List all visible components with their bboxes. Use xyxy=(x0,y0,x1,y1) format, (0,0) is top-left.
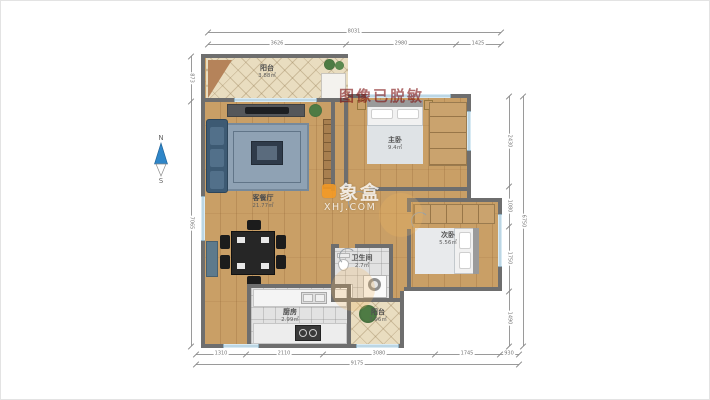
burner xyxy=(299,329,307,337)
dim-value: 8031 xyxy=(347,29,362,34)
dining-chair xyxy=(220,235,230,249)
room-label-kitchen: 厨房 2.99㎡ xyxy=(281,308,299,324)
sofa-cushion xyxy=(210,149,224,167)
coffee-table-top xyxy=(257,146,277,160)
room-area: 2.96㎡ xyxy=(369,317,387,324)
wall xyxy=(498,202,502,214)
dim-value: 1745 xyxy=(460,351,475,356)
window xyxy=(201,196,205,241)
room-label-second: 次卧 5.56㎡ xyxy=(439,231,457,247)
wall xyxy=(399,344,404,348)
dim-value: 6750 xyxy=(521,214,526,229)
wall xyxy=(404,287,502,291)
dim-value: 2110 xyxy=(277,351,292,356)
wall xyxy=(201,241,205,348)
second-bed-headboard xyxy=(473,228,479,274)
dining-chair xyxy=(276,255,286,269)
watermark-circle xyxy=(331,267,375,311)
wall xyxy=(201,54,348,58)
burner xyxy=(309,329,317,337)
room-label-balcony-top: 阳台 3.88㎡ xyxy=(258,64,276,80)
room-label-balcony-bottom: 阳台 2.96㎡ xyxy=(369,308,387,324)
plant-living xyxy=(309,104,322,117)
room-name: 主卧 xyxy=(388,136,402,144)
dim-value: 3626 xyxy=(270,41,285,46)
wall xyxy=(331,244,339,248)
tv xyxy=(245,107,289,114)
brand-site: XHJ.COM xyxy=(324,202,376,213)
dim-value: 930 xyxy=(503,351,515,356)
window xyxy=(467,111,471,151)
dim-value: 1310 xyxy=(214,351,229,356)
room-label-living: 客餐厅 21.77㎡ xyxy=(252,194,273,210)
dim-value: 2430 xyxy=(507,134,512,149)
wall xyxy=(201,54,205,196)
wall xyxy=(259,344,356,348)
watermark-circle xyxy=(379,193,423,237)
room-area: 9.4㎡ xyxy=(388,145,402,152)
dim-value: 873 xyxy=(189,72,194,84)
wall xyxy=(201,344,223,348)
room-name: 阳台 xyxy=(260,64,274,72)
sofa-cushion xyxy=(210,127,224,145)
wall xyxy=(331,102,335,191)
room-area: 5.56㎡ xyxy=(439,240,457,247)
sofa-cushion xyxy=(210,171,224,189)
balcony-plant xyxy=(324,59,335,70)
dim-value: 2980 xyxy=(394,41,409,46)
wall xyxy=(467,94,471,111)
sink-bowl xyxy=(303,294,313,302)
floorplan-canvas: 阳台 3.88㎡ 客餐厅 21.77㎡ 主卧 9.4㎡ 次卧 5.56㎡ 卫生间… xyxy=(0,0,710,400)
room-label-master: 主卧 9.4㎡ xyxy=(388,136,402,152)
room-name: 厨房 xyxy=(283,308,297,316)
compass: N S xyxy=(147,135,175,191)
balcony-corner-deco xyxy=(208,60,232,98)
sideboard xyxy=(206,241,218,277)
balcony-slider-window xyxy=(234,98,317,102)
balcony-plant xyxy=(335,61,344,70)
place-setting xyxy=(261,263,269,269)
room-name: 次卧 xyxy=(441,231,455,239)
pillow xyxy=(371,109,393,119)
compass-south-label: S xyxy=(159,178,163,185)
room-area: 2.99㎡ xyxy=(281,317,299,324)
privacy-watermark: 图像已脱敏 xyxy=(339,85,424,106)
sink-bowl xyxy=(315,294,325,302)
pillow xyxy=(459,232,471,249)
wall xyxy=(247,288,251,344)
wall xyxy=(407,198,502,202)
dining-chair xyxy=(247,220,261,230)
dining-chair xyxy=(220,255,230,269)
wall xyxy=(344,98,348,187)
room-area: 21.77㎡ xyxy=(252,203,273,210)
window xyxy=(223,344,259,348)
dim-value: 1425 xyxy=(471,41,486,46)
room-name: 客餐厅 xyxy=(253,194,274,202)
north-arrow-icon xyxy=(150,142,172,178)
dim-value: 1080 xyxy=(507,199,512,214)
wall xyxy=(369,187,471,191)
place-setting xyxy=(237,237,245,243)
place-setting xyxy=(237,263,245,269)
pillow xyxy=(397,109,419,119)
xiangbox-logo-icon xyxy=(322,184,336,198)
wall xyxy=(407,229,411,287)
master-wardrobe xyxy=(429,102,467,166)
wall xyxy=(355,244,393,248)
brand-name: 象盒 xyxy=(339,178,381,205)
place-setting xyxy=(261,237,269,243)
dim-value: 9175 xyxy=(350,361,365,366)
wall xyxy=(389,244,393,302)
exterior-cover-right xyxy=(471,54,531,198)
room-area: 3.88㎡ xyxy=(258,73,276,80)
dim-value: 7065 xyxy=(189,216,194,231)
dim-value: 3080 xyxy=(372,351,387,356)
room-name: 阳台 xyxy=(371,308,385,316)
dim-value: 1750 xyxy=(507,251,512,266)
compass-north-label: N xyxy=(158,135,163,142)
room-name: 卫生间 xyxy=(352,254,373,262)
wall xyxy=(204,98,234,102)
window xyxy=(498,214,502,267)
pillow xyxy=(459,252,471,269)
dim-value: 1490 xyxy=(507,311,512,326)
window xyxy=(356,344,399,348)
dining-chair xyxy=(276,235,286,249)
